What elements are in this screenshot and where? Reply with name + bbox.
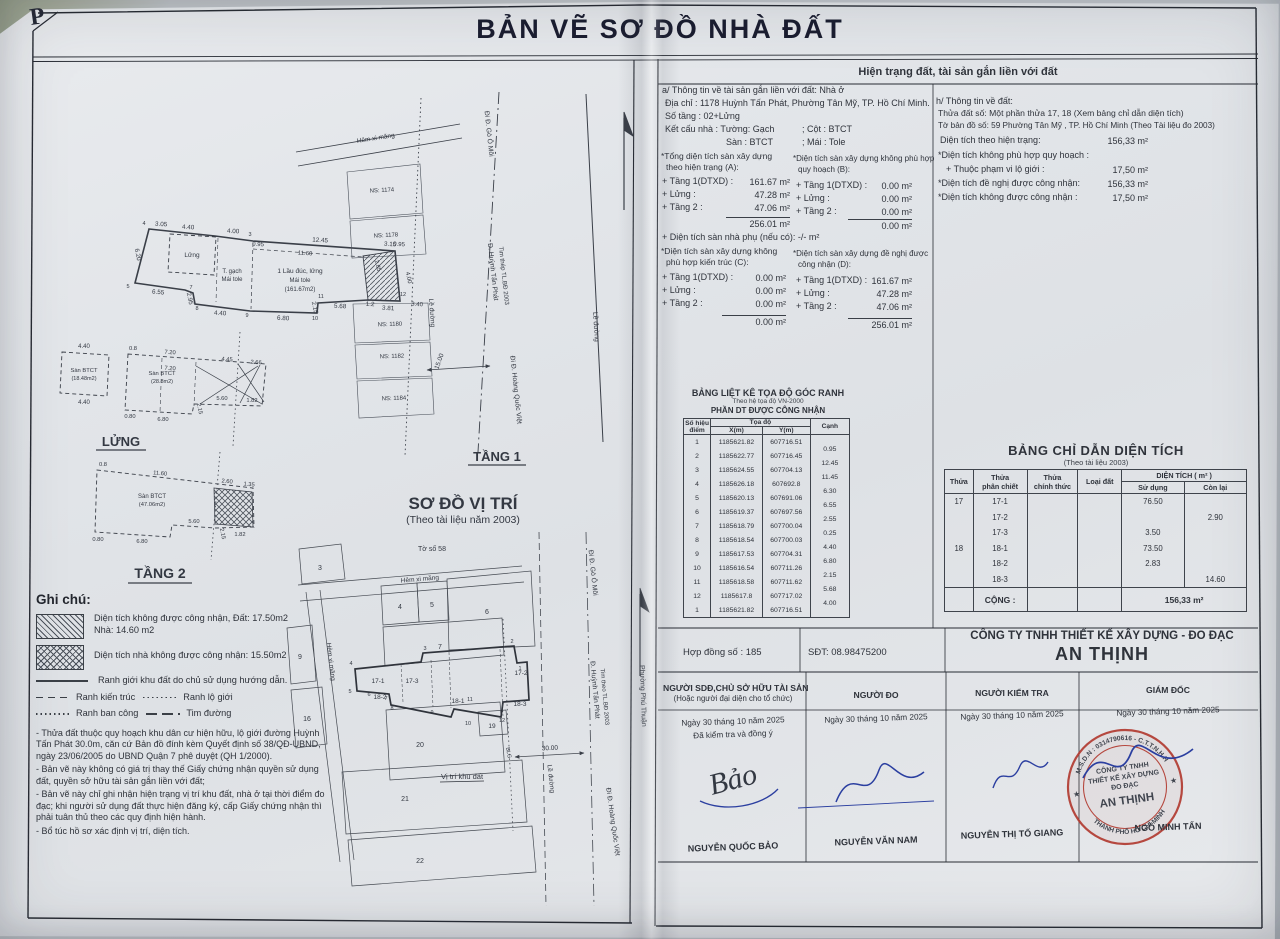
room-label: 1 Lầu đúc, lửng: [277, 266, 323, 275]
land-plot: Thửa đất số: Một phần thửa 17, 18 (Xem b…: [938, 109, 1184, 118]
col-header: Tọa độ: [711, 419, 811, 427]
row-value: 47.28 m²: [726, 190, 790, 200]
north-arrow-icon: [624, 112, 633, 210]
point-label: 2: [510, 639, 513, 645]
legend-text: Ranh giới khu đất do chủ sử dụng hướng d…: [98, 675, 287, 687]
row-value: 0.00 m²: [722, 286, 786, 296]
note-paragraph: - Thửa đất thuộc quy hoạch khu dân cư hi…: [36, 728, 328, 763]
dim-label: 4.40: [78, 344, 90, 350]
point-label: 5: [126, 284, 129, 290]
legend-text: Ranh lộ giới: [183, 692, 232, 704]
dim-label: 3.81: [382, 305, 395, 313]
road-label: Đi Đ. Gò Ô Môi: [483, 110, 497, 157]
area-table-grid: Thửa Thửaphân chiết Thửachính thức Loại …: [944, 469, 1247, 612]
signer-role: NGƯỜI ĐO: [810, 690, 942, 700]
row-label: + Tầng 2 :: [796, 302, 837, 312]
block-d-total: 256.01 m²: [848, 318, 912, 330]
row-label: + Tầng 2 :: [796, 207, 837, 217]
legend-item: Diện tích nhà không được công nhận: 15.5…: [36, 644, 328, 670]
legend-text: Ranh ban công: [76, 708, 138, 720]
table-row: 18-22.83: [945, 556, 1247, 572]
row-label: + Lửng :: [796, 289, 830, 299]
centerline-icon: [146, 713, 180, 715]
dim-label: 1.82: [246, 398, 257, 404]
coordinate-table-title: BẢNG LIỆT KÊ TỌA ĐỘ GÓC RANH: [683, 388, 853, 398]
point-label: 8: [195, 306, 198, 312]
legend-text: Diện tích nhà không được công nhận: 15.5…: [94, 650, 286, 662]
parcel-label: 3: [318, 565, 322, 572]
not-recognized-crosshatch: [214, 488, 253, 527]
note-paragraph: - Bản vẽ này không có giá trị thay thế G…: [36, 764, 328, 787]
point-label: 7: [384, 696, 387, 702]
stamp-star: ★: [1169, 776, 1177, 786]
land-row-label: + Thuộc phạm vi lộ giới :: [946, 165, 1045, 175]
aux-floor-line: + Diện tích sàn nhà phụ (nếu có): -/- m²: [662, 233, 819, 243]
signer-role: GIÁM ĐỐC: [1081, 685, 1255, 695]
block-b-total: 0.00 m²: [848, 219, 912, 231]
land-row-value: 17,50 m²: [1082, 193, 1148, 203]
dim-label: 4.40: [214, 310, 227, 318]
land-row-label: *Diện tích không phù hợp quy hoạch :: [938, 151, 1089, 161]
floor-plan-tang2-texts: Sàn BTCT (47.06m2) 0.8 11.60 2.60 1.35 5…: [92, 449, 520, 581]
point-label: 5: [348, 689, 351, 695]
dotted-line-icon: [36, 713, 70, 715]
road-label: Lề đường: [591, 312, 602, 343]
point-label: 3: [423, 646, 426, 652]
point-label: 4: [142, 221, 145, 227]
parcel-label: 4: [398, 604, 402, 611]
dim-label: 2.95: [185, 292, 194, 306]
site-label: Vị trí khu đất: [441, 772, 484, 781]
road-label: Đi Đ. Hoàng Quốc Việt: [508, 355, 524, 424]
table-row: 17-33.50: [945, 525, 1247, 541]
row-value: 0.00 m²: [722, 299, 786, 309]
note-paragraph: - Bản vẽ này chỉ ghi nhận hiện trạng vị …: [36, 789, 328, 824]
col-header: X(m): [711, 427, 763, 435]
dim-label: 0.8: [99, 462, 107, 468]
road-dim-label: 30.00: [542, 745, 559, 753]
sheet-label: Tờ số 58: [418, 544, 446, 553]
north-arrow-icon: [640, 588, 649, 676]
area-table-title: BẢNG CHỈ DẪN DIỆN TÍCH: [944, 443, 1248, 458]
coordinate-table-subtitle: Theo hệ tọa độ VN-2000: [683, 398, 853, 405]
legend-text: Tim đường: [186, 708, 231, 720]
table-row: 17-22.90: [945, 510, 1247, 526]
dim-label: 6.80: [157, 417, 168, 423]
dim-label: 1.2: [365, 301, 375, 309]
dim-label: 7.20: [164, 366, 176, 373]
point-label: 9: [245, 313, 248, 319]
land-heading: h/ Thông tin về đất:: [936, 97, 1013, 107]
dim-label: 12.45: [312, 236, 329, 244]
ns-label: NS: 1182: [380, 354, 405, 361]
room-label: Sàn BTCT: [70, 368, 98, 374]
signature-surveyor: [836, 764, 924, 802]
room-label: (161.67m2): [285, 287, 316, 293]
ns-label: NS: 1178: [374, 232, 400, 239]
point-label: 9: [430, 710, 433, 716]
signer-role-sub: (Hoặc người đại diện cho tổ chức): [663, 694, 803, 703]
parcel-label: 18-3: [513, 701, 526, 708]
dim-label: 3.05: [155, 221, 168, 229]
table-total-row: CỘNG : 156,33 m²: [945, 588, 1247, 612]
signature-owner: Bảo: [705, 757, 760, 801]
alley-label: Hẻm xi măng: [356, 132, 395, 145]
floor-plan-lung: [60, 332, 266, 450]
dim-label: 6.80: [136, 539, 147, 545]
site-map-texts: Tờ số 58 Hẻm xi măng Hẻm xi măng 3 4 5 6…: [298, 544, 647, 865]
note-paragraph: - Bổ túc hồ sơ xác định vị trí, diện tíc…: [36, 826, 328, 838]
road-label: Đi Đ. Gò Ô Môi: [587, 549, 601, 596]
ns-label: NS: 1174: [370, 187, 396, 194]
asset-heading: a/ Thông tin về tài sản gắn liền với đất…: [662, 86, 844, 96]
parcel-label: 6: [485, 609, 489, 616]
room-label: T. gạch: [222, 269, 241, 275]
dim-label: 0.80: [124, 414, 135, 420]
legend-item: Ranh kiến trúc Ranh lộ giới: [36, 692, 328, 704]
dim-label: 4.00: [404, 271, 412, 284]
map-subtitle: (Theo tài liệu năm 2003): [406, 514, 520, 526]
block-c-heading: phù hợp kiến trúc (C):: [666, 258, 749, 267]
row-label: + Lửng :: [662, 190, 696, 200]
company-name-short: AN THỊNH: [946, 644, 1258, 665]
block-a-total: 256.01 m²: [726, 217, 790, 229]
row-value: 0.00 m²: [722, 273, 786, 283]
land-row-label: Diện tích theo hiện trạng:: [940, 136, 1041, 146]
parcel-label: 20: [416, 742, 424, 749]
col-header: Sử dụng: [1122, 482, 1184, 494]
block-a-heading: *Tổng diện tích sàn xây dựng: [661, 152, 772, 161]
table-row: 1717-176.50: [945, 494, 1247, 510]
road-label: Phường Phú Thuận: [638, 665, 647, 727]
ns-label: NS: 1180: [378, 322, 403, 329]
dim-label: 7.20: [164, 350, 176, 357]
parcel-label: 21: [401, 796, 409, 803]
row-value: 0.00 m²: [848, 194, 912, 204]
row-value: 161.67 m²: [726, 177, 790, 187]
panel-header: Hiện trạng đất, tài sản gắn liền với đất: [658, 66, 1258, 78]
dotted-line-icon: [143, 697, 177, 699]
dim-label: 0.95: [393, 242, 406, 249]
block-d-heading: công nhận (D):: [798, 261, 851, 270]
row-value: 161.67 m²: [848, 276, 912, 286]
row-label: + Tầng 2 :: [662, 203, 703, 213]
road-reserve-hatch: [363, 251, 400, 301]
col-header: Y(m): [762, 427, 810, 435]
signer-role: NGƯỜI SDĐ,CHỦ SỞ HỮU TÀI SẢN: [663, 683, 803, 693]
road-label: Lề đường: [427, 298, 438, 327]
area-table-subtitle: (Theo tài liệu 2003): [944, 458, 1248, 467]
plan-label: TẦNG 1: [473, 449, 521, 464]
dim-label: 0.8: [129, 346, 137, 352]
hatch-swatch-icon: [36, 614, 84, 639]
point-label: 7: [189, 285, 192, 291]
dim-label: 0.80: [92, 537, 103, 543]
road-dim-label: 15.00: [434, 352, 446, 370]
land-row-value: 156,33 m²: [1082, 136, 1148, 146]
dim-label: 1.35: [243, 482, 255, 489]
col-header: DIỆN TÍCH ( m² ): [1122, 470, 1247, 482]
dim-label: 4.45: [221, 357, 233, 364]
total-label: CỘNG :: [973, 588, 1027, 612]
dim-label: 5.60: [188, 519, 199, 525]
road-label: Lề đường: [546, 764, 558, 794]
col-header: điểm: [689, 427, 704, 434]
asset-structure-roof: ; Mái : Tole: [802, 138, 845, 148]
row-label: + Lửng :: [796, 194, 830, 204]
area-index-table: BẢNG CHỈ DẪN DIỆN TÍCH (Theo tài liệu 20…: [944, 443, 1248, 612]
point-label: 12: [499, 718, 505, 724]
legend-item: Diện tích không được công nhận, Đất: 17.…: [36, 613, 328, 639]
room-label: Mái tole: [289, 278, 311, 284]
asset-floors: Số tầng : 02+Lửng: [665, 112, 740, 122]
legend-text: Nhà: 14.60 m2: [94, 625, 154, 635]
point-label: 1: [518, 666, 521, 672]
col-header: Cạnh: [810, 419, 849, 435]
col-header: Số hiệu: [685, 420, 709, 427]
legend-item: Ranh giới khu đất do chủ sử dụng hướng d…: [36, 675, 328, 687]
block-c-total: 0.00 m²: [722, 315, 786, 327]
dim-label: 4.00: [227, 228, 240, 236]
row-label: + Lửng :: [662, 286, 696, 296]
block-c-heading: *Diện tích sàn xây dựng không: [661, 247, 777, 256]
block-b-heading: *Diện tích sàn xây dựng không phù hợp: [793, 155, 934, 164]
dim-label: 6.55: [152, 288, 165, 296]
plan-label: LỬNG: [102, 434, 140, 449]
dim-label: 5.68: [334, 303, 347, 311]
point-label: 10: [465, 721, 471, 727]
room-label: Sàn BTCT: [138, 494, 166, 500]
road-label: BLG: [504, 747, 512, 759]
legend-text: Diện tích không được công nhận, Đất: 17.…: [94, 613, 288, 623]
col-header: Còn lại: [1184, 482, 1246, 494]
ns-label: NS: 1184: [382, 396, 407, 403]
table-row: 1818-173.50: [945, 541, 1247, 557]
parcel-label: 5: [430, 602, 434, 609]
room-label: (28.8m2): [151, 379, 173, 385]
point-label: 10: [312, 316, 318, 322]
dim-label: 2.15: [218, 528, 226, 540]
coordinate-table-section: PHẦN DT ĐƯỢC CÔNG NHẬN: [683, 406, 853, 415]
notes-legend: Ghi chú: Diện tích không được công nhận,…: [36, 592, 328, 839]
row-value: 47.28 m²: [848, 289, 912, 299]
road-label: Đi Đ. Hoàng Quốc Việt: [604, 787, 622, 856]
block-a-heading: theo hiện trạng (A):: [666, 163, 739, 172]
crosshatch-swatch-icon: [36, 645, 84, 670]
col-header: Thửa: [945, 470, 974, 494]
col-header: Loại đất: [1078, 470, 1122, 494]
stamp-star: ★: [1072, 789, 1080, 799]
notes-heading: Ghi chú:: [36, 592, 328, 607]
dim-label: 2.15: [195, 403, 203, 415]
point-label: 6: [367, 692, 370, 698]
row-value: 47.06 m²: [726, 203, 790, 213]
table-row: 11185621.82607716.510.95: [684, 435, 850, 450]
plan-label: TẦNG 2: [134, 565, 186, 581]
document-photo: Hẻm xi măng NS: 1174 NS: 1178 NS: 1180 N…: [0, 0, 1280, 939]
dim-label: 5.60: [216, 396, 227, 402]
land-row-label: *Diện tích đề nghị được công nhận:: [938, 179, 1080, 189]
solid-line-icon: [36, 680, 88, 682]
block-d-heading: *Diện tích sàn xây dựng đề nghị được: [793, 250, 928, 259]
asset-address: Địa chỉ : 1178 Huỳnh Tấn Phát, Phường Tâ…: [665, 99, 930, 109]
point-label: 11: [467, 697, 473, 703]
dim-label: 2.66: [250, 360, 262, 367]
asset-structure-floor: Sàn : BTCT: [726, 138, 773, 148]
point-label: 8: [390, 706, 393, 712]
dim-label: 2.60: [221, 479, 233, 486]
parcel-label: 17-3: [405, 678, 418, 685]
total-value: 156,33 m²: [1122, 588, 1247, 612]
contract-number: Hợp đồng số : 185: [683, 648, 762, 658]
dim-label: 11.60: [153, 470, 168, 477]
page-title: BẢN VẼ SƠ ĐỒ NHÀ ĐẤT: [300, 14, 1020, 45]
block-b-heading: quy hoạch (B):: [798, 166, 850, 175]
parcel-label: 22: [416, 858, 424, 865]
room-label: (47.06m2): [139, 502, 165, 508]
company-name: CÔNG TY TNHH THIẾT KẾ XÂY DỰNG - ĐO ĐẠC: [946, 630, 1258, 642]
point-label: 11: [318, 294, 324, 300]
asset-structure-col: ; Cột : BTCT: [802, 125, 852, 135]
dim-label: 3.40: [411, 302, 424, 309]
coordinate-table: BẢNG LIỆT KÊ TỌA ĐỘ GÓC RANH Theo hệ tọa…: [683, 388, 853, 618]
dashed-line-icon: [36, 697, 70, 699]
building-outline: [135, 229, 400, 313]
point-label: 4: [349, 661, 352, 667]
map-title: SƠ ĐỒ VỊ TRÍ: [409, 494, 519, 513]
row-label: + Tầng 2 :: [662, 299, 703, 309]
land-row-value: 156,33 m²: [1082, 179, 1148, 189]
land-row-label: *Diện tích không được công nhận :: [938, 193, 1078, 203]
dim-label: 11.60: [298, 251, 314, 258]
point-label: 3: [248, 232, 251, 238]
dim-label: 1.82: [234, 532, 245, 538]
parcel-label: 17-1: [371, 678, 384, 685]
table-row: 18-314.60: [945, 572, 1247, 588]
parcel-label: 19: [488, 723, 496, 730]
dim-label: 6.80: [277, 315, 290, 323]
dim-label: 4.40: [182, 224, 195, 232]
dim-label: 6.20: [133, 248, 142, 262]
legend-item: Ranh ban công Tim đường: [36, 708, 328, 720]
row-value: 0.00 m²: [848, 207, 912, 217]
room-label: Mái tole: [221, 277, 243, 283]
room-label: (18.48m2): [71, 376, 96, 382]
land-sheet: Tờ bản đồ số: 59 Phường Tân Mỹ , TP. Hồ …: [938, 121, 1215, 130]
parcel-label: 18-1: [451, 698, 464, 705]
legend-text: Ranh kiến trúc: [76, 692, 135, 704]
row-value: 47.06 m²: [848, 302, 912, 312]
point-label: 12: [400, 292, 406, 298]
company-phone: SĐT: 08.98475200: [808, 648, 887, 658]
room-label: Lửng: [184, 251, 200, 259]
land-row-value: 17,50 m²: [1082, 165, 1148, 175]
floor-plan-lung-texts: Sàn BTCT (18.48m2) 4.40 4.40 Sàn BTCT (2…: [70, 344, 261, 449]
coordinate-table-grid: Số hiệu điểm Tọa độ Cạnh X(m) Y(m) 11185…: [683, 418, 850, 618]
dim-label: 4.40: [78, 400, 90, 406]
parcel-label: 7: [438, 644, 442, 651]
dim-label: 0.95: [252, 242, 265, 249]
asset-structure: Kết cấu nhà : Tường: Gạch: [665, 125, 774, 135]
signer-role: NGƯỜI KIỂM TRA: [948, 688, 1076, 698]
row-value: 0.00 m²: [848, 181, 912, 191]
signature-checker: [993, 761, 1048, 788]
row-label: + Tầng 1(DTXD) :: [662, 177, 733, 187]
